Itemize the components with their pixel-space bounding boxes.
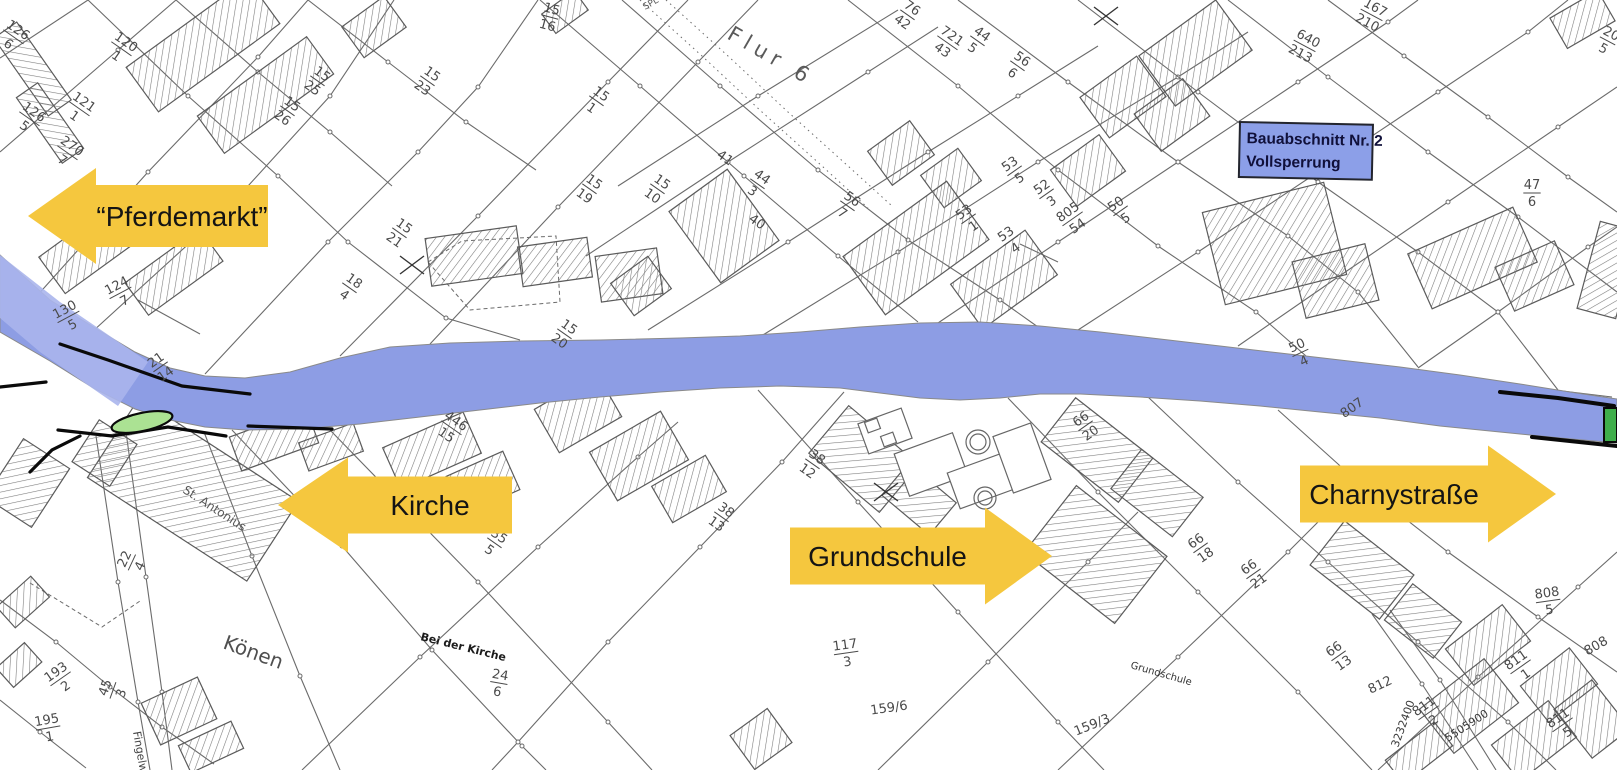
- cadastral-map: 1266270712011211126515251526151615231511…: [0, 0, 1617, 770]
- arrow-label-grundschule: Grundschule: [808, 541, 967, 572]
- svg-text:47: 47: [1524, 178, 1541, 193]
- map-annotation-image: 1266270712011211126515251526151615231511…: [0, 0, 1617, 770]
- svg-text:6: 6: [1528, 195, 1536, 210]
- arrow-label-kirche: Kirche: [390, 490, 469, 521]
- arrow-label-charnystra-e: Charnystraße: [1309, 479, 1479, 510]
- label-box-line-1: Bauabschnitt Nr. 2: [1246, 130, 1382, 150]
- arrow-label-pferdemarkt: “Pferdemarkt”: [96, 201, 267, 232]
- cadastral-map-svg: 1266270712011211126515251526151615231511…: [0, 0, 1617, 770]
- construction-phase-label: Bauabschnitt Nr. 2Vollsperrung: [1239, 122, 1383, 180]
- label-box-line-2: Vollsperrung: [1246, 153, 1341, 172]
- green-road-segment: [1604, 408, 1617, 442]
